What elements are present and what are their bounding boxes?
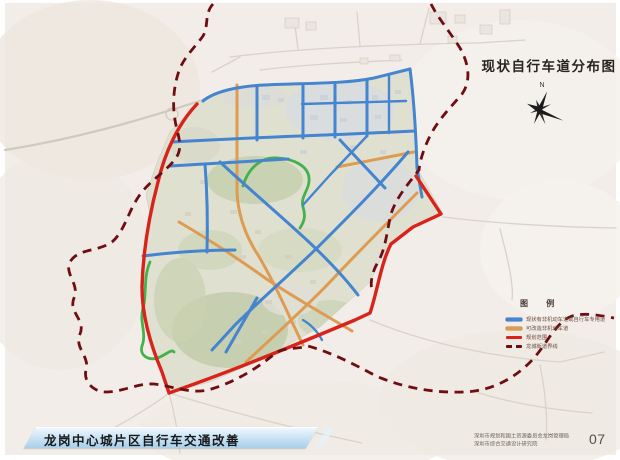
banner-title: 龙岗中心城片区自行车交通改善	[44, 430, 240, 449]
compass-star-icon	[520, 89, 568, 135]
legend-swatch-blue	[506, 318, 522, 321]
legend-item-planning-boundary: 规划范围	[506, 333, 618, 342]
legend-title: 图 例	[506, 298, 618, 309]
legend-item-convertible-lane: 可改造非机动车道	[506, 324, 618, 333]
legend: 图 例 现状有非机动车道或自行车专用道 可改造非机动车道 规划范围 龙城街道界线	[506, 298, 618, 351]
map-title: 现状自行车道分布图	[474, 55, 620, 75]
legend-swatch-orange	[506, 327, 522, 330]
credits: 深圳市规划和国土资源委员会龙岗管理局 深圳市综合交通设计研究院	[474, 431, 594, 447]
legend-item-label: 规划范围	[526, 334, 547, 341]
compass-north-label: N	[522, 82, 562, 89]
legend-swatch-dashed	[506, 345, 522, 348]
credit-line-1: 深圳市规划和国土资源委员会龙岗管理局	[474, 432, 553, 437]
legend-item-label: 可改造非机动车道	[526, 325, 568, 332]
page-number: 07	[589, 431, 606, 447]
legend-item-district-boundary: 龙城街道界线	[506, 342, 618, 351]
compass-rose: N	[520, 82, 568, 138]
credit-line-2: 深圳市综合交通设计研究院	[474, 440, 553, 445]
legend-swatch-red	[506, 336, 522, 339]
legend-item-label: 龙城街道界线	[526, 343, 558, 350]
legend-item-existing-bike-lane: 现状有非机动车道或自行车专用道	[506, 315, 618, 324]
legend-item-label: 现状有非机动车道或自行车专用道	[526, 316, 605, 323]
